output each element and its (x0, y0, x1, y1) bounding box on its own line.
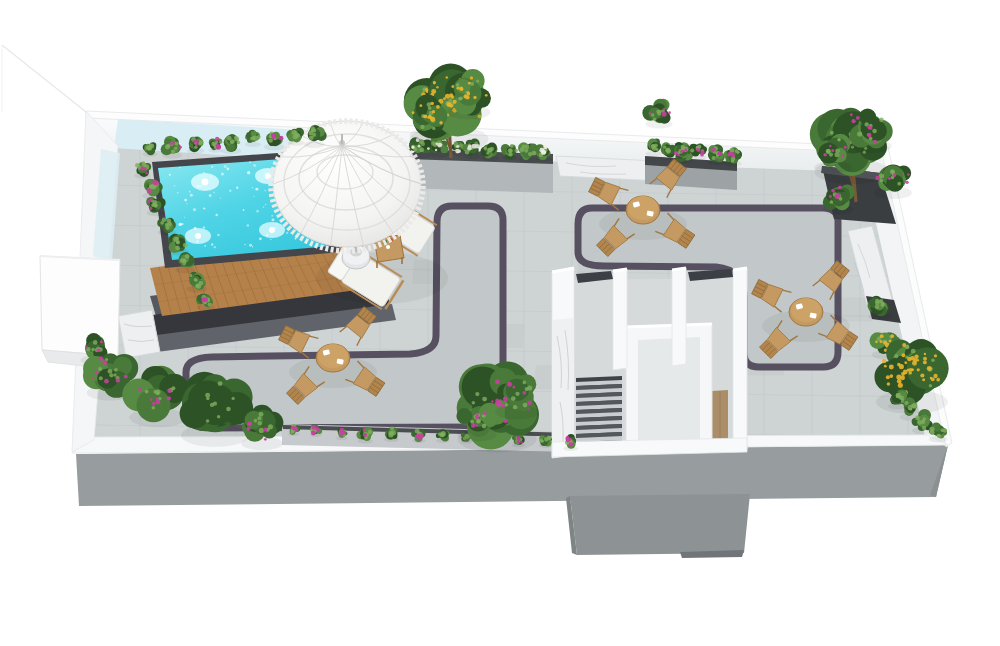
cup-white (386, 245, 390, 249)
flowering-tree (456, 361, 539, 452)
bush (539, 435, 552, 448)
stair-partition-b (672, 268, 686, 366)
flowering-bush (642, 99, 672, 129)
rooftop-terrace-svg: 3D rooftop terrace floor plan rendering (0, 0, 1000, 646)
stair-steps (576, 380, 622, 446)
bush (180, 372, 253, 447)
background-massing (2, 45, 86, 112)
bush (143, 142, 158, 157)
stair-enclosure (552, 268, 747, 458)
poolside-marble-bench (118, 310, 160, 358)
bush (157, 218, 176, 236)
stair-wall-right (733, 268, 747, 452)
planter-top-center-face (406, 159, 553, 193)
flowering-tree (404, 63, 491, 158)
flowering-bush (456, 403, 500, 442)
left-attached-block (40, 256, 120, 369)
flowering-bush (146, 197, 165, 216)
flowering-bush (411, 429, 426, 443)
building-facade (76, 445, 948, 558)
bush (518, 142, 539, 162)
stair-partition-a (613, 269, 627, 370)
stair-shaft-facade (570, 494, 750, 555)
stair-core-box (626, 324, 712, 449)
flowering-bush (134, 161, 151, 178)
rooftop-terrace-render: 3D rooftop terrace floor plan rendering (0, 0, 1000, 646)
